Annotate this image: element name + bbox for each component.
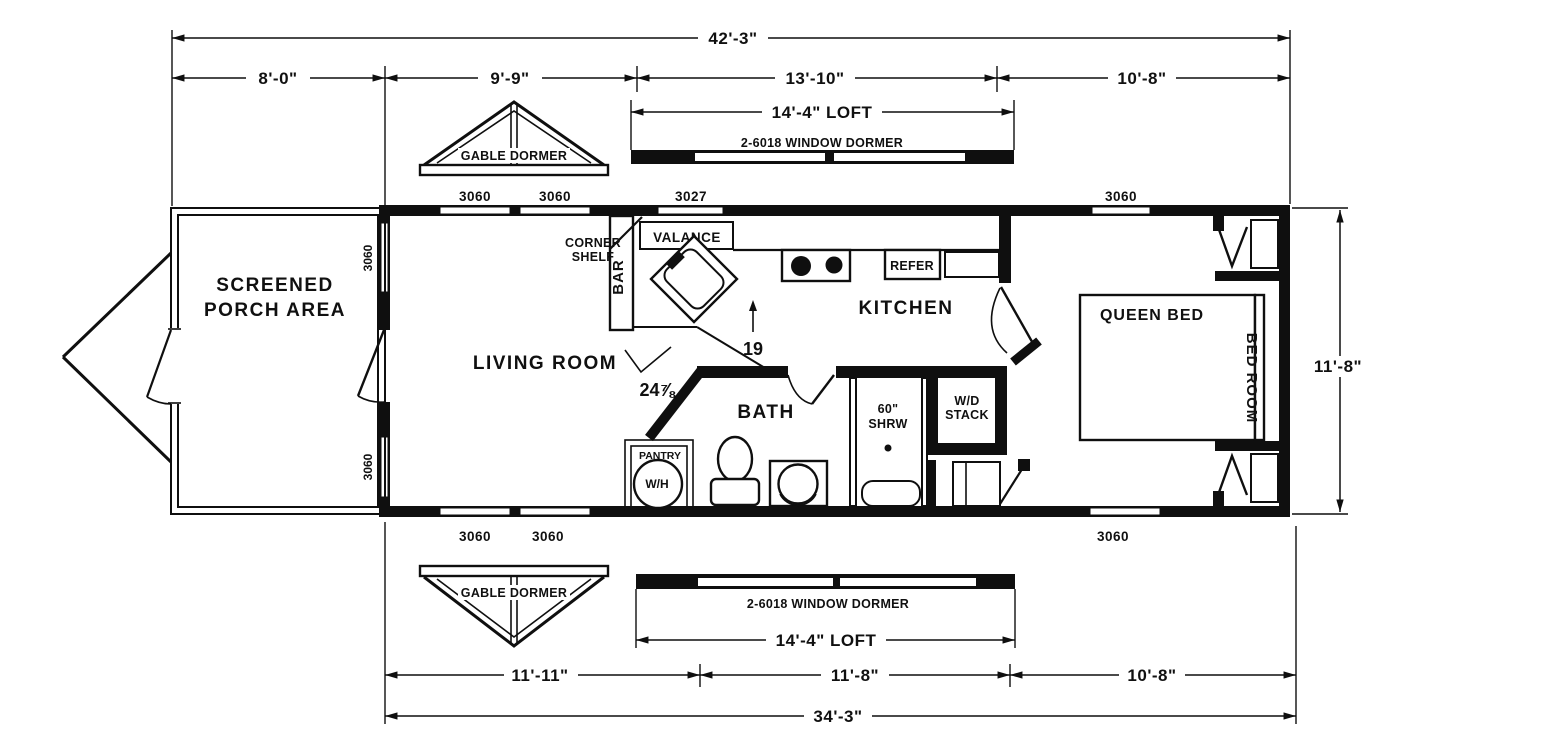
end-cabinet [945,252,999,277]
closet-door [1000,466,1024,504]
pantry: PANTRY W/H [625,440,693,510]
dim-overall-bottom: 34'-3" [813,707,862,726]
dimension-lines-top: 42'-3" 8'-0" 9'-9" 13'-10" 10'-8" [172,28,1290,206]
room-label-kitchen: KITCHEN [859,298,954,319]
bedroom-wardrobe [928,459,1030,506]
stove [782,250,850,281]
dim-counter-depth: 19 [743,339,763,359]
gable-dormer-bottom: GABLE DORMER [420,566,608,646]
window-label: 3060 [539,189,571,204]
bathroom: BATH 60" SHRW [649,366,934,506]
window-dormer-top-label: 2-6018 WINDOW DORMER [741,136,903,150]
room-label-bedroom: BED ROOM [1243,333,1260,424]
window-label: 3060 [532,529,564,544]
dim-living-width: 9'-9" [490,69,529,88]
gable-dormer-bottom-label: GABLE DORMER [461,586,567,600]
gable-dormer-top-label: GABLE DORMER [461,149,567,163]
refer-label: REFER [890,259,934,273]
bedroom-door [1001,287,1035,347]
window-labels-top: 3060 3060 3027 3060 [459,189,1137,204]
dim-overall-top: 42'-3" [708,29,757,48]
kitchen: VALANCE REFER KITCHEN 19 [633,222,999,371]
dimension-lines-bottom: 11'-11" 11'-8" 10'-8" 34'-3" [385,522,1296,726]
floor-plan-page: 42'-3" 8'-0" 9'-9" 13'-10" 10'-8" 14'-4"… [0,0,1542,742]
window-label: 3027 [675,189,707,204]
room-label-living: LIVING ROOM [473,353,617,374]
floor-plan-canvas: 42'-3" 8'-0" 9'-9" 13'-10" 10'-8" 14'-4"… [0,0,1542,742]
room-label-porch-line1: SCREENED [216,275,334,296]
leader-lines [625,347,671,372]
dim-loft-top: 14'-4" LOFT [772,103,873,122]
dim-counter-height: 24⅞ [639,380,675,400]
window-label: 3060 [459,189,491,204]
room-label-bath: BATH [737,402,794,423]
shower: 60" SHRW [850,378,927,506]
window-labels-bottom: 3060 3060 3060 [459,529,1129,544]
bar-label: BAR [610,259,627,295]
dim-kitchen-width: 13'-10" [785,69,844,88]
shower-label-line2: SHRW [868,417,907,431]
wd-label-line2: STACK [945,408,989,422]
dim-loft-bottom: 14'-4" LOFT [776,631,877,650]
left-wall-window-labels: 3060 3060 [361,244,375,480]
living-room: LIVING ROOM 24⅞ [473,347,676,400]
dim-bedroom-width-bottom: 10'-8" [1127,666,1176,685]
counter-depth-dim: 19 [743,300,763,359]
dim-kitchen-width-bottom: 11'-8" [831,666,879,685]
window-label: 3060 [1105,189,1137,204]
washer-dryer-stack: W/D STACK [928,366,1007,455]
bedroom-entry [991,216,1039,362]
dim-living-width-bottom: 11'-11" [511,666,568,685]
loft-dimension-top: 14'-4" LOFT 2-6018 WINDOW DORMER [631,100,1014,164]
room-label-porch-line2: PORCH AREA [204,300,346,321]
dim-porch-width: 8'-0" [258,69,297,88]
bar-counter: BAR CORNER SHELF [565,216,642,330]
corner-shelf-label-line2: SHELF [572,250,615,264]
window-label: 3060 [459,529,491,544]
screened-porch: SCREENED PORCH AREA [63,208,385,514]
wd-label-line1: W/D [954,394,979,408]
shower-label-line1: 60" [878,402,899,416]
window-label: 3060 [1097,529,1129,544]
window-dormer-bottom-label: 2-6018 WINDOW DORMER [747,597,909,611]
lavatory-sink [770,461,827,506]
loft-dimension-bottom: 2-6018 WINDOW DORMER 14'-4" LOFT [636,574,1015,650]
bedroom: QUEEN BED BED ROOM [1080,216,1280,506]
window-label: 3060 [361,453,375,480]
dimension-right-side: 11'-8" [1292,208,1371,514]
water-heater-label: W/H [645,477,668,491]
gable-dormer-top: GABLE DORMER [420,102,608,175]
corner-shelf-label-line1: CORNER [565,236,621,250]
chamfer-wall [1013,341,1039,362]
shower-seat [862,481,920,506]
hitch-line-top [63,253,171,357]
closet-top-right [1213,216,1280,281]
toilet [711,437,759,505]
dim-side-height: 11'-8" [1314,357,1362,376]
shower-drain [885,445,892,452]
refrigerator: REFER [885,250,940,279]
queen-bed-label: QUEEN BED [1100,307,1204,324]
window-label: 3060 [361,244,375,271]
closet-bottom-right [1213,441,1280,506]
dim-bedroom-width: 10'-8" [1117,69,1166,88]
